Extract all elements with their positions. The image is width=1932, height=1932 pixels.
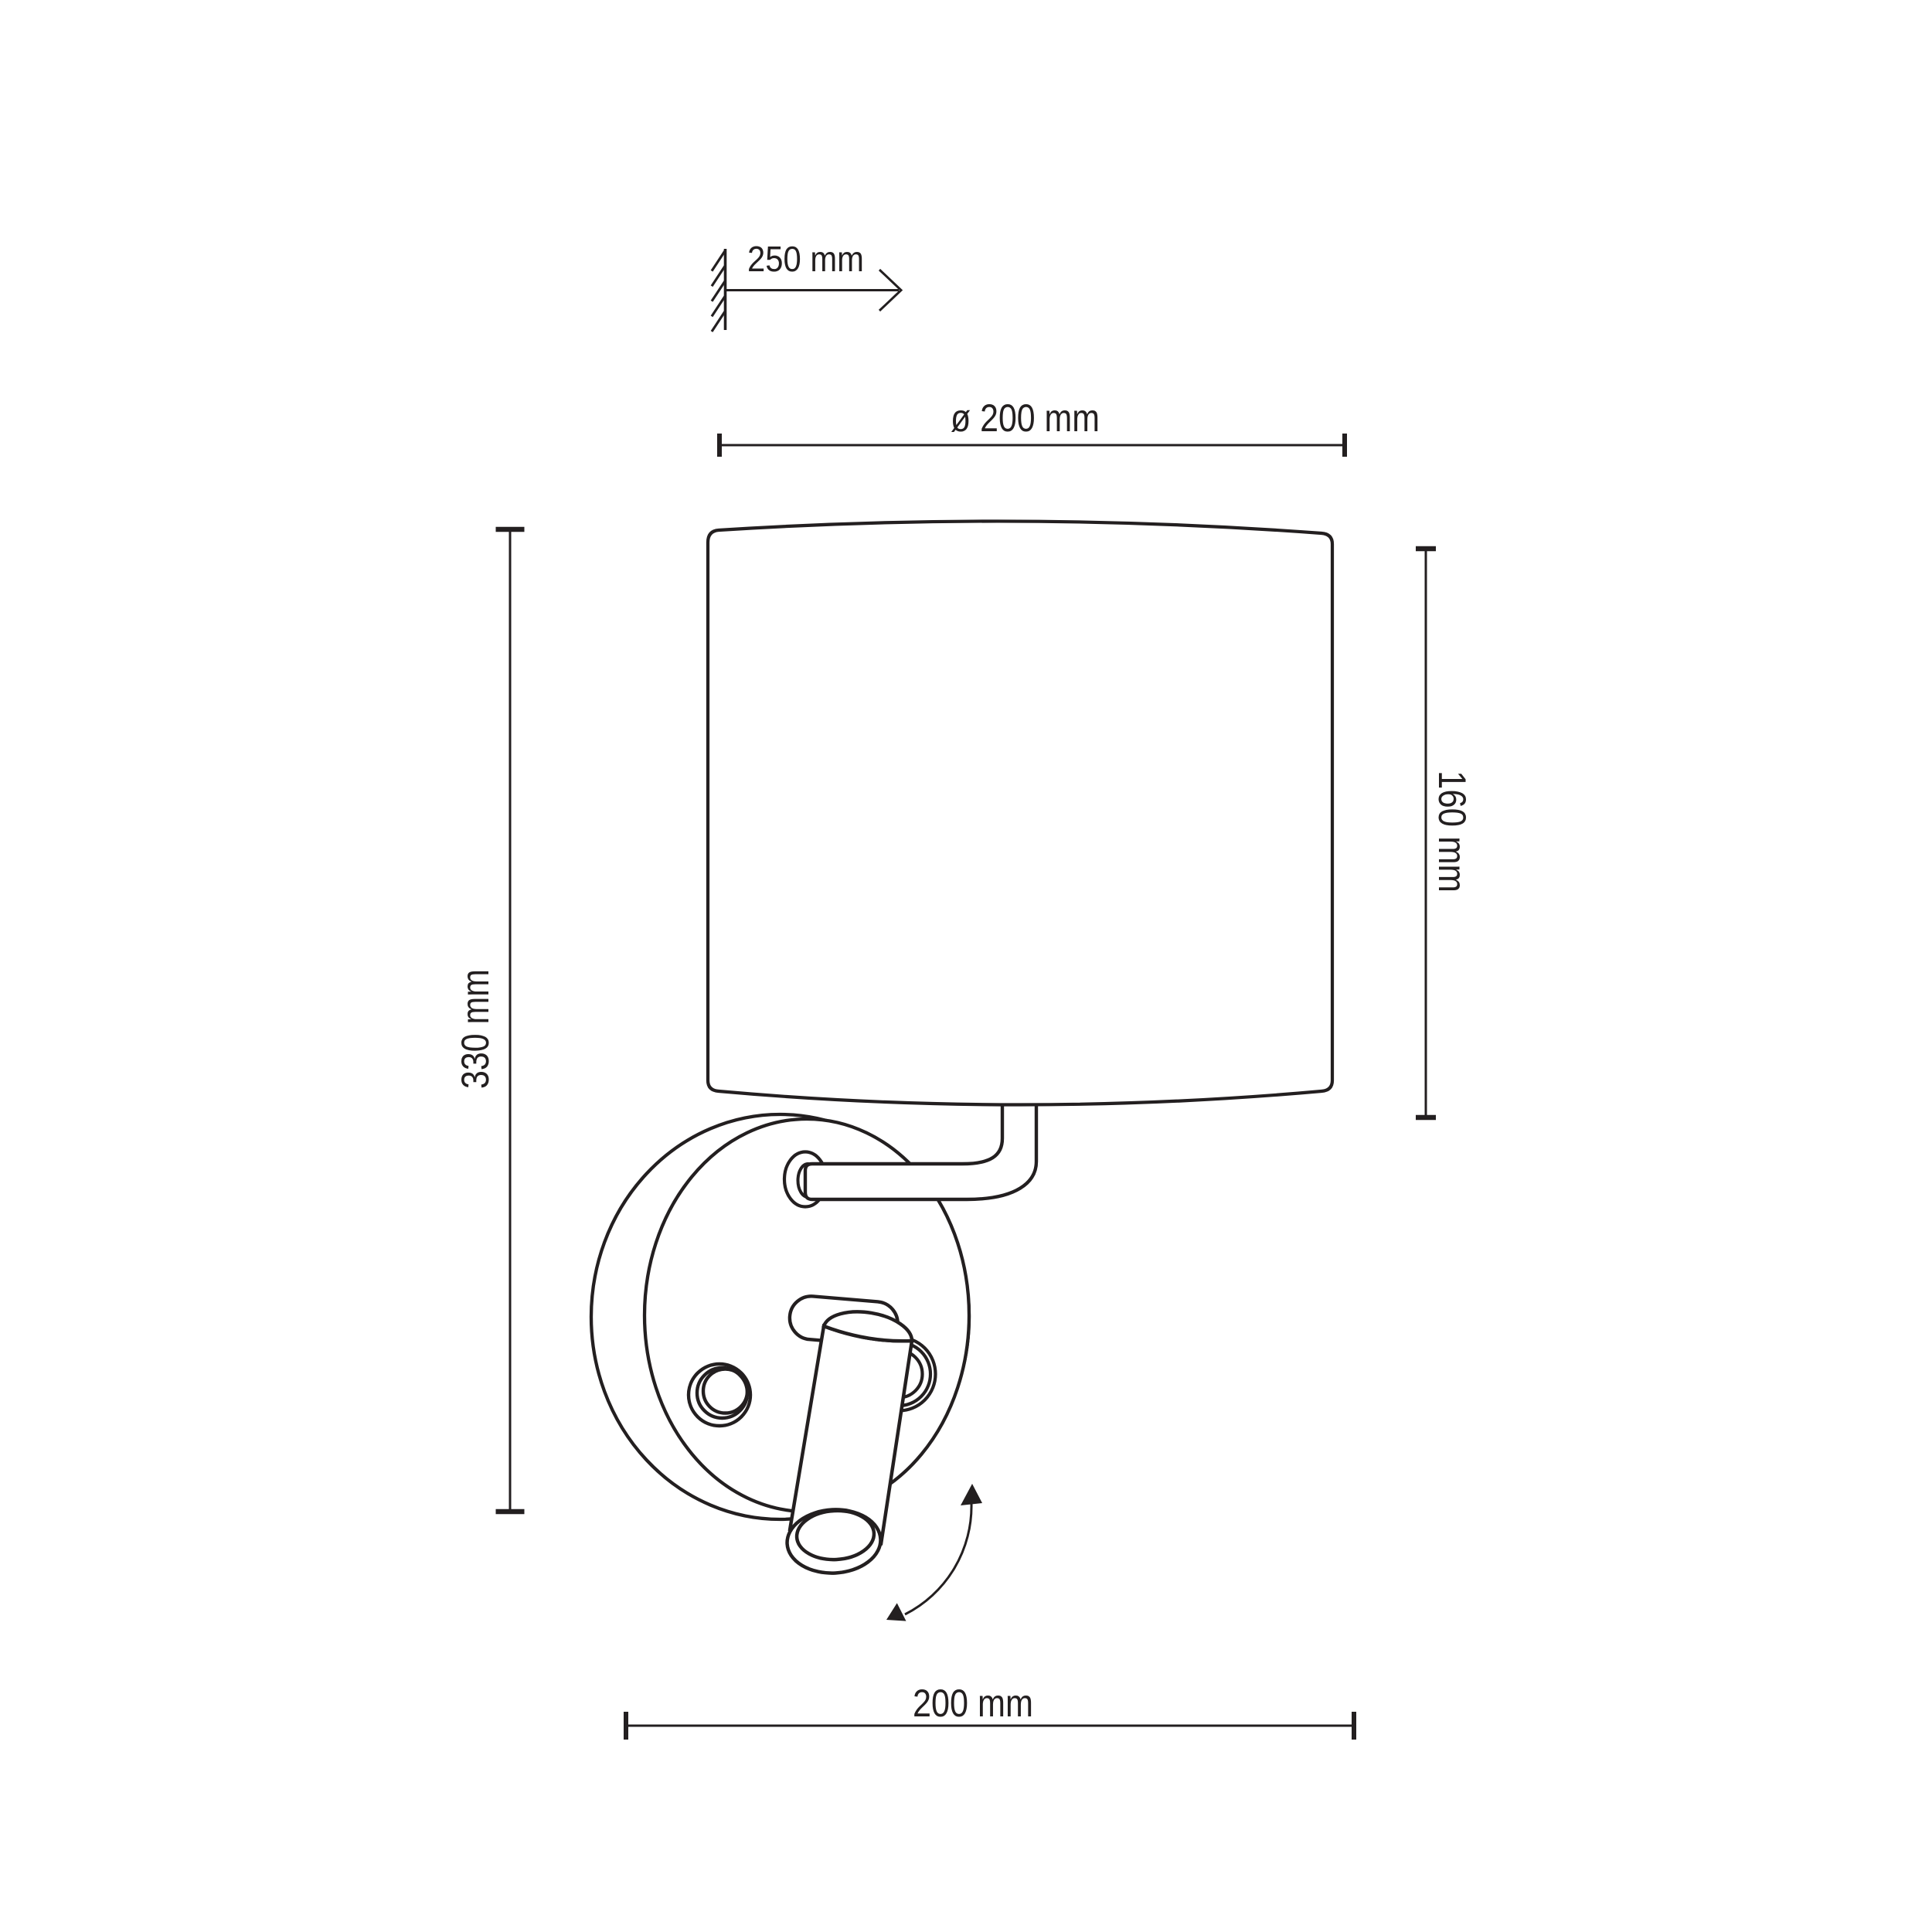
svg-text:200 mm: 200 mm: [913, 1682, 1033, 1725]
svg-text:250 mm: 250 mm: [747, 239, 864, 279]
svg-text:160 mm: 160 mm: [1430, 770, 1474, 893]
svg-text:ø 200 mm: ø 200 mm: [951, 396, 1100, 440]
svg-text:330 mm: 330 mm: [454, 969, 497, 1089]
